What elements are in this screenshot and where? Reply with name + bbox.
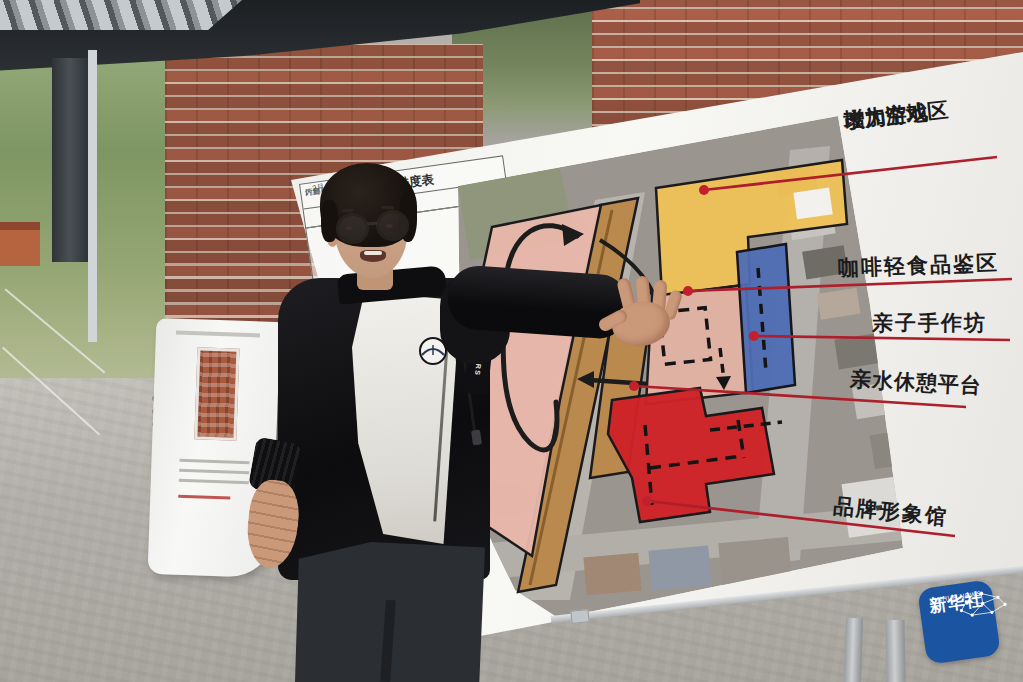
hair-side	[321, 200, 338, 242]
frame-clamp	[570, 609, 589, 624]
poster-text-line	[179, 479, 249, 484]
poster-building-photo	[194, 347, 239, 440]
metal-post	[88, 50, 97, 342]
steel-column	[52, 58, 88, 262]
eye	[385, 224, 393, 228]
construction-site-photo: 倒排进度表 内容 2月 厂房相关条件 计划，须达企业	[0, 0, 1023, 682]
board-stand-leg	[844, 618, 863, 682]
poster-title-line	[176, 331, 260, 338]
board-stand-leg	[885, 620, 905, 682]
zipper-pull	[471, 429, 482, 445]
pointing-hand	[598, 276, 698, 354]
xinhua-news-watermark: 新华社 XINHUA NEWS	[917, 579, 1001, 665]
roof-truss	[0, 0, 242, 30]
poster-text-line-red	[178, 495, 230, 500]
distant-building	[0, 222, 40, 266]
teeth	[364, 251, 382, 255]
poster-text-line	[179, 459, 249, 464]
eye	[345, 226, 353, 230]
eyebrow	[381, 206, 394, 209]
poster-text-line	[179, 469, 249, 474]
label-handcraft: 亲子手作坊	[872, 309, 1012, 337]
